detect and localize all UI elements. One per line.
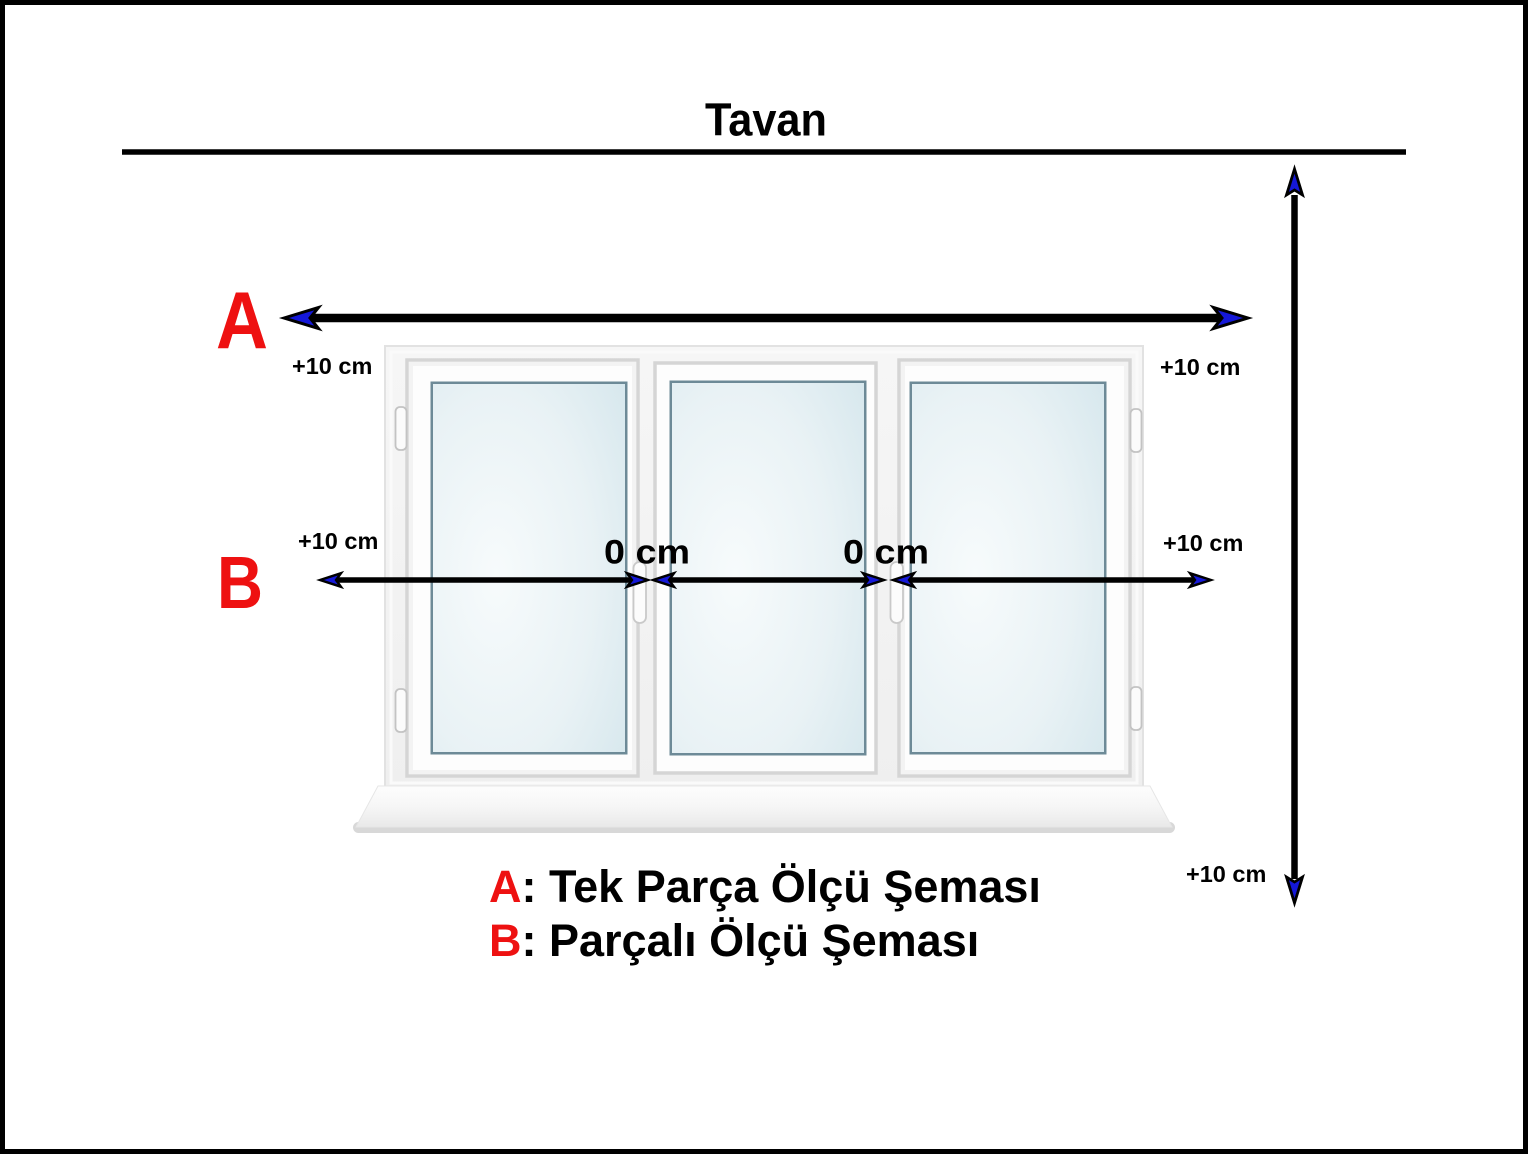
svg-text:Tavan: Tavan [705, 94, 827, 146]
svg-text:B: Parçalı Ölçü Şeması: B: Parçalı Ölçü Şeması [489, 915, 979, 966]
svg-text:+10 cm: +10 cm [292, 353, 372, 379]
svg-text:+10 cm: +10 cm [298, 528, 378, 554]
svg-text:+10 cm: +10 cm [1186, 861, 1266, 887]
svg-text:A: Tek Parça Ölçü Şeması: A: Tek Parça Ölçü Şeması [489, 861, 1041, 912]
svg-text:0 cm: 0 cm [843, 534, 929, 572]
svg-text:0 cm: 0 cm [604, 534, 690, 572]
svg-text:B: B [217, 541, 263, 624]
svg-text:+10 cm: +10 cm [1160, 354, 1240, 380]
svg-text:+10 cm: +10 cm [1163, 530, 1243, 556]
svg-text:A: A [216, 276, 268, 366]
